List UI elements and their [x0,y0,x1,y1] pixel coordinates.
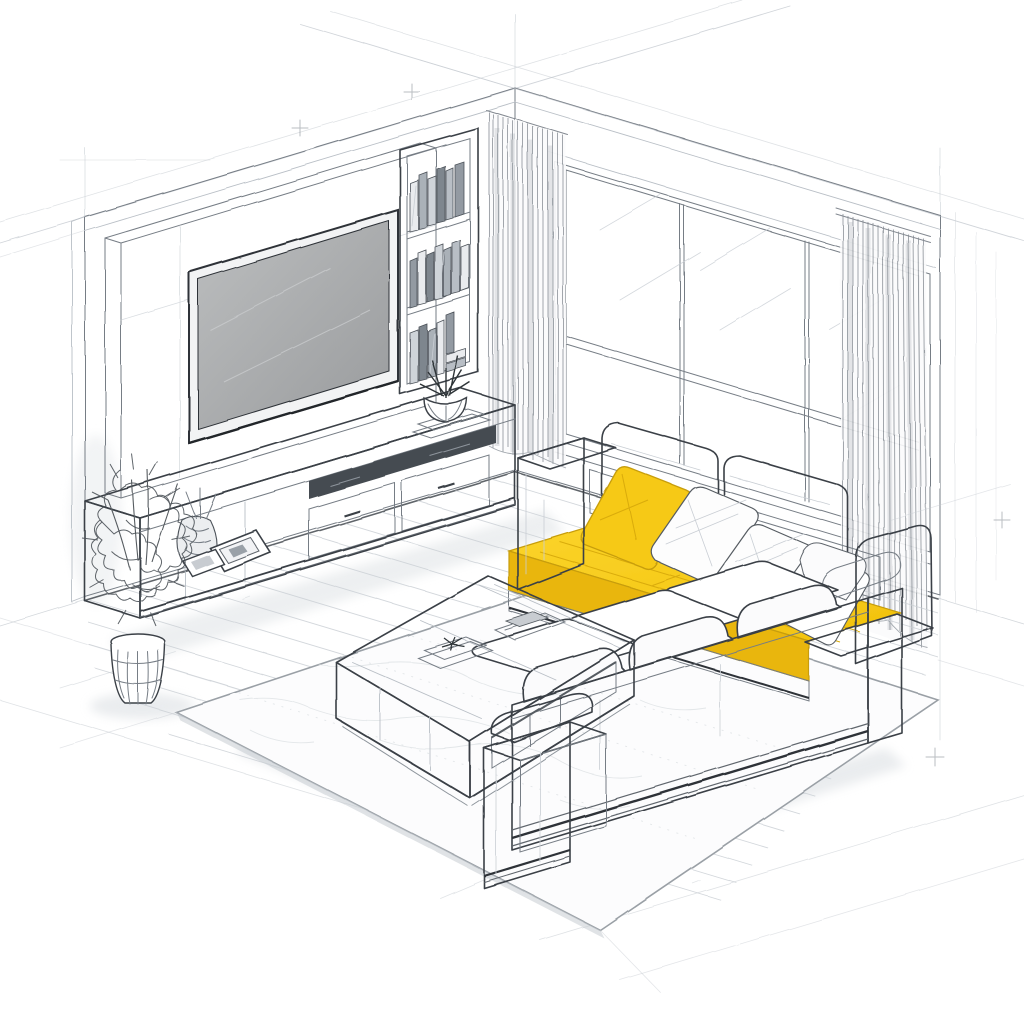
curtain-panel [488,112,566,470]
curtain-left [486,110,568,470]
living-room-sketch: Isometric living room sketch with yellow… [0,0,1024,1024]
sketch-stage: Isometric living room sketch with yellow… [0,0,1024,1024]
